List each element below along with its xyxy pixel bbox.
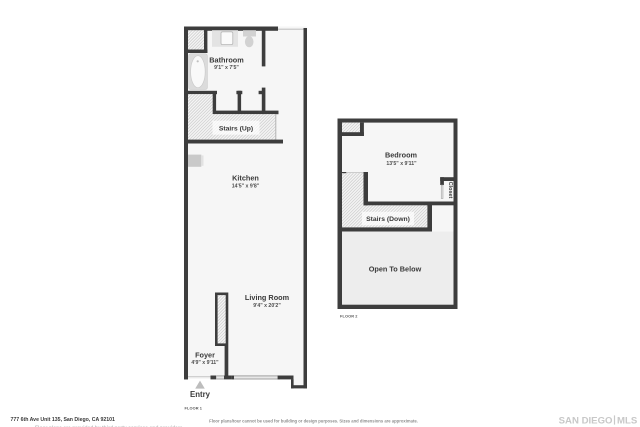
svg-text:Bathroom: Bathroom [209, 56, 244, 65]
svg-text:9'1" x 7'5": 9'1" x 7'5" [214, 65, 239, 71]
svg-text:MLS: MLS [617, 416, 638, 427]
svg-text:9'4" x 20'2": 9'4" x 20'2" [253, 303, 281, 309]
svg-text:Bedroom: Bedroom [385, 150, 418, 159]
svg-text:Stairs (Up): Stairs (Up) [219, 125, 253, 132]
svg-text:13'5" x 9'11": 13'5" x 9'11" [386, 161, 417, 167]
svg-text:Entry: Entry [190, 390, 211, 399]
svg-text:Stairs (Down): Stairs (Down) [366, 216, 410, 223]
svg-text:Kitchen: Kitchen [232, 173, 259, 182]
svg-text:FLOOR 1: FLOOR 1 [185, 405, 203, 410]
svg-text:Floor plans/tour cannot be use: Floor plans/tour cannot be used for buil… [209, 419, 418, 424]
svg-text:4'9" x 9'11": 4'9" x 9'11" [191, 360, 219, 366]
svg-text:FLOOR 2: FLOOR 2 [340, 313, 358, 318]
svg-text:SAN DIEGO: SAN DIEGO [559, 416, 613, 427]
svg-text:14'5" x 9'8": 14'5" x 9'8" [232, 184, 260, 190]
svg-text:Open To Below: Open To Below [369, 264, 422, 273]
svg-text:Closet: Closet [447, 182, 453, 199]
svg-text:Living Room: Living Room [245, 293, 290, 302]
svg-text:777 6th Ave Unit 135, San Dieg: 777 6th Ave Unit 135, San Diego, CA 9210… [11, 417, 115, 423]
svg-text:Foyer: Foyer [195, 350, 215, 359]
